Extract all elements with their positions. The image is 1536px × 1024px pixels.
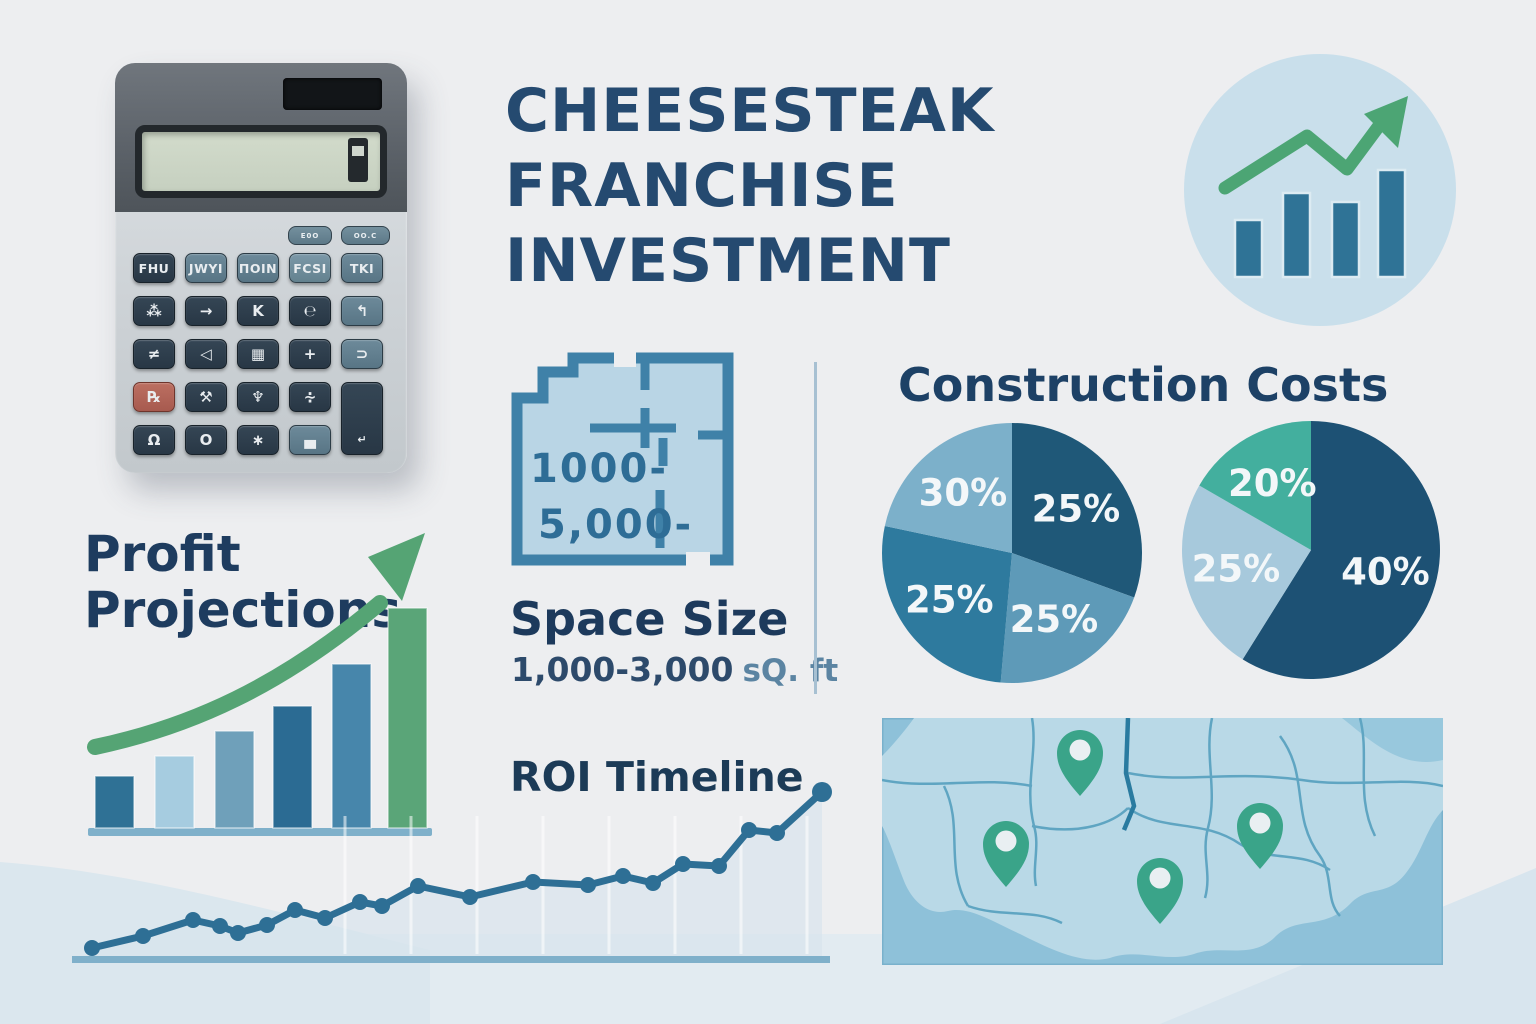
- roi-data-point: [525, 874, 541, 890]
- floor-plan-label-2: 5,000-: [538, 502, 693, 548]
- calculator-illustration: E0OOO.C FHUJWYIΠOINFCSITKI⁂→K℮↰≠◁▦+⊃℞⚒♆∻…: [115, 63, 407, 473]
- pie-slice-label: 25%: [1010, 598, 1099, 641]
- space-size-range-unit: sQ. ft: [742, 653, 838, 689]
- calculator-key: FHU: [133, 253, 175, 283]
- calculator-key: ♆: [237, 382, 279, 412]
- calculator-key: ΠOIN: [237, 253, 279, 283]
- calculator-solar-panel: [283, 78, 382, 110]
- roi-area-fill: [92, 792, 822, 956]
- calculator-key: ↵: [341, 382, 383, 455]
- calculator-small-buttons: E0OOO.C: [288, 226, 390, 245]
- growth-icon-bar: [1283, 193, 1310, 277]
- growth-icon-bar: [1332, 202, 1359, 277]
- space-size-range-value: 1,000-3,000: [511, 650, 733, 689]
- roi-data-point: [645, 875, 661, 891]
- calculator-key: O: [185, 425, 227, 455]
- calculator-key: ∗: [237, 425, 279, 455]
- page-title: CHEESESTEAK FRANCHISE INVESTMENT: [505, 74, 994, 299]
- space-size-heading: Space Size: [510, 592, 788, 646]
- vertical-divider: [814, 362, 817, 694]
- pie-slice-label: 40%: [1341, 550, 1430, 593]
- roi-data-point: [812, 782, 832, 802]
- growth-icon-bar: [1235, 220, 1262, 277]
- roi-data-point: [230, 925, 246, 941]
- calculator-key: ↰: [341, 296, 383, 326]
- calculator-keypad: FHUJWYIΠOINFCSITKI⁂→K℮↰≠◁▦+⊃℞⚒♆∻↵ΩO∗▄: [133, 253, 383, 455]
- calculator-key: K: [237, 296, 279, 326]
- profit-trend-arrow-head: [368, 533, 425, 601]
- calculator-key: ∻: [289, 382, 331, 412]
- calculator-key: JWYI: [185, 253, 227, 283]
- floor-plan-label-1: 1000-: [530, 446, 668, 492]
- calculator-key: ◁: [185, 339, 227, 369]
- pie-slice-label: 25%: [905, 578, 994, 621]
- page-title-line2: FRANCHISE: [505, 149, 994, 224]
- floor-plan-icon: 1000- 5,000-: [508, 350, 748, 570]
- franchise-locations-map: [882, 718, 1443, 965]
- roi-data-point: [615, 868, 631, 884]
- roi-data-point: [259, 917, 275, 933]
- map-pin-center: [1150, 868, 1171, 889]
- calculator-key: +: [289, 339, 331, 369]
- roi-data-point: [287, 902, 303, 918]
- roi-data-point: [462, 889, 478, 905]
- map-pin-center: [996, 831, 1017, 852]
- pie-slice-label: 25%: [1192, 548, 1281, 591]
- calculator-key: ⊃: [341, 339, 383, 369]
- calculator-key: Ω: [133, 425, 175, 455]
- roi-data-point: [374, 898, 390, 914]
- page-title-line1: CHEESESTEAK: [505, 74, 994, 149]
- roi-data-point: [769, 825, 785, 841]
- roi-data-point: [84, 940, 100, 956]
- space-size-range: 1,000-3,000sQ. ft: [511, 650, 838, 689]
- floor-plan-door-gap-bottom: [686, 552, 710, 570]
- pie-slice-label: 20%: [1228, 462, 1317, 505]
- growth-chart-icon: [1180, 50, 1460, 330]
- construction-costs-pie-chart-1: 25%25%25%30%: [875, 415, 1151, 691]
- pie-slice-label: 30%: [919, 471, 1008, 514]
- calculator-key: ≠: [133, 339, 175, 369]
- floor-plan-door-gap-top: [614, 350, 636, 367]
- roi-data-point: [185, 912, 201, 928]
- roi-data-point: [135, 928, 151, 944]
- roi-timeline-line-chart: [60, 780, 850, 990]
- calculator-display: [135, 125, 387, 198]
- calculator-key: ▦: [237, 339, 279, 369]
- pie-slice-label: 25%: [1032, 487, 1121, 530]
- calculator-key: ℞: [133, 382, 175, 412]
- page-title-line3: INVESTMENT: [505, 224, 994, 299]
- calculator-small-button: OO.C: [341, 226, 390, 245]
- construction-costs-pie-chart-2: 40%25%20%: [1173, 412, 1449, 688]
- calculator-key: FCSI: [289, 253, 331, 283]
- roi-data-point: [410, 878, 426, 894]
- roi-data-point: [352, 894, 368, 910]
- calculator-key: ⁂: [133, 296, 175, 326]
- calculator-key: ℮: [289, 296, 331, 326]
- roi-data-point: [711, 858, 727, 874]
- calculator-key: TKI: [341, 253, 383, 283]
- roi-data-point: [317, 910, 333, 926]
- roi-chart-baseline: [72, 956, 830, 963]
- map-pin-center: [1250, 813, 1271, 834]
- roi-data-point: [741, 822, 757, 838]
- calculator-small-button: E0O: [288, 226, 332, 245]
- roi-data-point: [580, 877, 596, 893]
- growth-icon-bar: [1378, 170, 1405, 277]
- calculator-key: ▄: [289, 425, 331, 455]
- map-pin-center: [1070, 740, 1091, 761]
- construction-costs-heading: Construction Costs: [898, 358, 1388, 412]
- calculator-key: ⚒: [185, 382, 227, 412]
- infographic-canvas: E0OOO.C FHUJWYIΠOINFCSITKI⁂→K℮↰≠◁▦+⊃℞⚒♆∻…: [0, 0, 1536, 1024]
- calculator-display-switch: [348, 138, 368, 182]
- roi-data-point: [212, 918, 228, 934]
- calculator-key: →: [185, 296, 227, 326]
- roi-data-point: [675, 856, 691, 872]
